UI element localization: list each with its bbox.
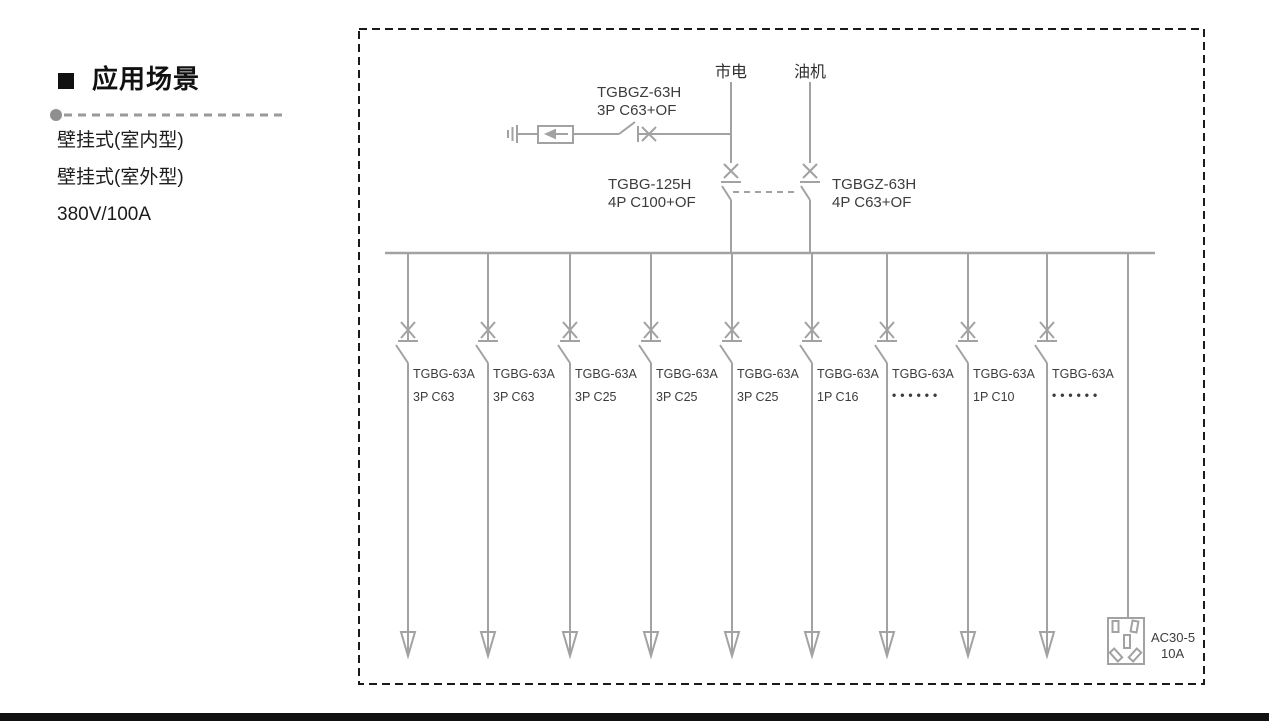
spd-breaker-rating: 3P C63+OF xyxy=(597,102,676,119)
feeder-branch-5: TGBG-63A 3P C25 xyxy=(720,253,799,656)
single-line-diagram: 市电 油机 TGBG-125H 4P C xyxy=(0,0,1269,721)
feeder-branch-6: TGBG-63A 1P C16 xyxy=(800,253,879,656)
earth-icon xyxy=(508,125,517,143)
feeder-branch-1: TGBG-63A 3P C63 xyxy=(396,253,475,656)
branch-rating: 3P C25 xyxy=(575,390,617,404)
feeder-branch-4: TGBG-63A 3P C25 xyxy=(639,253,718,656)
branch-model: TGBG-63A xyxy=(817,367,879,381)
mains-breaker-rating: 4P C100+OF xyxy=(608,194,696,211)
branch-model: TGBG-63A xyxy=(892,367,954,381)
feeder-branch-8: TGBG-63A 1P C10 xyxy=(956,253,1035,656)
feeder-branch-7: TGBG-63A •••••• xyxy=(875,253,954,656)
socket-rating: 10A xyxy=(1161,646,1184,661)
branch-breaker-icon xyxy=(800,322,822,363)
spd-breaker-icon xyxy=(619,122,656,142)
spd-icon xyxy=(538,126,573,143)
branch-model: TGBG-63A xyxy=(413,367,475,381)
spd-breaker-model: TGBGZ-63H xyxy=(597,84,681,101)
feeder-branch-9: TGBG-63A •••••• xyxy=(1035,253,1114,656)
spd-branch: TGBGZ-63H 3P C63+OF xyxy=(508,84,731,143)
socket-model: AC30-5 xyxy=(1151,630,1195,645)
branch-model: TGBG-63A xyxy=(656,367,718,381)
branch-breaker-icon xyxy=(1035,322,1057,363)
bottom-divider-bar xyxy=(0,713,1269,721)
branch-model: TGBG-63A xyxy=(493,367,555,381)
branch-model: TGBG-63A xyxy=(1052,367,1114,381)
branch-breaker-icon xyxy=(956,322,978,363)
diagram-border xyxy=(359,29,1204,684)
feeder-branch-2: TGBG-63A 3P C63 xyxy=(476,253,555,656)
branch-rating-ellipsis: •••••• xyxy=(1052,388,1101,402)
generator-label: 油机 xyxy=(794,63,826,81)
branch-model: TGBG-63A xyxy=(737,367,799,381)
branch-rating: 1P C16 xyxy=(817,390,859,404)
mains-incomer: 市电 xyxy=(715,63,747,253)
branch-breaker-icon xyxy=(720,322,742,363)
feeder-branch-3: TGBG-63A 3P C25 xyxy=(558,253,637,656)
branch-breaker-icon xyxy=(476,322,498,363)
branch-model: TGBG-63A xyxy=(575,367,637,381)
socket-branch: AC30-5 10A xyxy=(1108,253,1195,664)
branch-breaker-icon xyxy=(558,322,580,363)
generator-breaker-model: TGBGZ-63H xyxy=(832,176,916,193)
branch-rating-ellipsis: •••••• xyxy=(892,388,941,402)
branch-model: TGBG-63A xyxy=(973,367,1035,381)
branch-rating: 3P C25 xyxy=(656,390,698,404)
generator-breaker-rating: 4P C63+OF xyxy=(832,194,911,211)
page: 应用场景 壁挂式(室内型) 壁挂式(室外型) 380V/100A 市电 油机 xyxy=(0,0,1269,721)
branch-breaker-icon xyxy=(639,322,661,363)
mains-breaker-icon xyxy=(721,164,741,200)
branch-rating: 3P C63 xyxy=(413,390,455,404)
mains-label: 市电 xyxy=(715,63,747,81)
branch-rating: 1P C10 xyxy=(973,390,1015,404)
separator-line xyxy=(50,109,285,121)
branch-breaker-icon xyxy=(875,322,897,363)
socket-icon xyxy=(1108,618,1144,664)
branch-rating: 3P C63 xyxy=(493,390,535,404)
mains-breaker-model: TGBG-125H xyxy=(608,176,691,193)
generator-breaker-icon xyxy=(800,164,820,200)
branch-breaker-icon xyxy=(396,322,418,363)
branch-rating: 3P C25 xyxy=(737,390,779,404)
generator-incomer: 油机 xyxy=(794,63,826,253)
